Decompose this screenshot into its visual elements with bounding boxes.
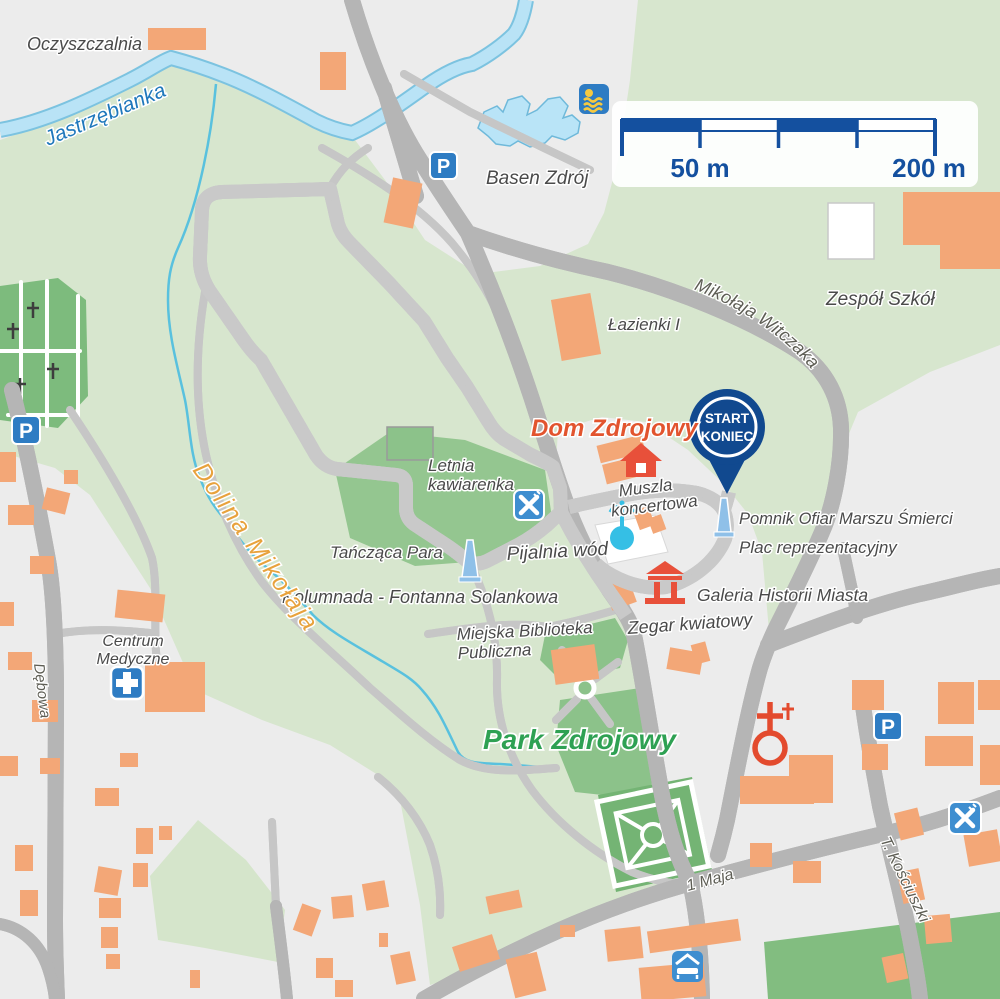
building [903,192,1000,245]
building [862,744,888,770]
building [925,736,973,766]
svg-text:P: P [881,716,895,739]
building-white [828,203,874,259]
building [852,680,884,710]
building [560,925,575,937]
building [750,843,772,867]
building [15,845,33,871]
building [159,826,172,840]
label-letnia-line1: Letnia [428,456,474,475]
label-centrum-line2: Medyczne [97,651,170,668]
building [8,505,34,525]
scale-bar: 50 m 200 m [612,101,978,187]
label-kolumnada: Kolumnada - Fontanna Solankowa [282,587,558,607]
building [95,788,119,806]
building [793,861,821,883]
building [148,28,206,50]
building [106,954,120,969]
parking-icon-east: P [874,712,902,740]
svg-text:P: P [19,420,33,443]
building [145,662,205,712]
label-park-zdrojowy: Park Zdrojowy [483,724,677,755]
building [978,680,1000,710]
building [115,590,166,623]
parking-icon-cemetery: P [12,416,40,444]
building [20,890,38,916]
building [551,644,599,685]
pin-start-label: START [705,411,750,426]
label-zespol-szkol: Zespół Szkół [825,289,936,310]
building [133,863,148,887]
building [604,926,643,962]
building [190,970,200,988]
building [0,602,14,626]
scale-label-50m: 50 m [670,153,729,183]
svg-text:P: P [437,156,450,178]
building [938,682,974,724]
label-galeria: Galeria Historii Miasta [697,585,868,605]
medical-cross-icon [111,667,143,699]
building [101,927,118,948]
label-plac: Plac reprezentacyjny [739,538,898,557]
building [64,470,78,484]
building [980,745,1000,785]
lawn-fenced [387,427,433,460]
label-tanczaca-para: Tańcząca Para [330,543,443,562]
scale-label-200m: 200 m [892,153,966,183]
building [316,958,333,978]
label-centrum-line1: Centrum [102,633,163,650]
map-canvas[interactable]: P P P [0,0,1000,999]
hotel-icon [672,951,703,982]
building [99,898,121,918]
label-basen-zdroj: Basen Zdrój [486,168,589,189]
label-lazienki: Łazienki I [608,315,680,334]
building [320,52,346,90]
building [740,776,814,804]
building [335,980,353,997]
label-pomnik: Pomnik Ofiar Marszu Śmierci [739,509,954,528]
building [379,933,388,947]
building [40,758,60,774]
building [136,828,153,854]
building [362,880,389,911]
building [331,895,354,919]
parking-icon-basen: P [430,152,457,179]
label-dom-zdrojowy: Dom Zdrojowy [531,415,699,442]
building [0,452,16,482]
building [0,756,18,776]
label-biblioteka-line2: Publiczna [457,640,532,663]
building [30,556,54,574]
label-oczyszczalnia: Oczyszczalnia [27,34,142,54]
building [8,652,32,670]
building [940,245,1000,269]
building [94,866,122,896]
swimming-pool-icon [579,84,609,114]
building [120,753,138,767]
pin-end-label: KONIEC [701,429,754,444]
restaurant-icon-park [514,490,544,520]
label-letnia-line2: kawiarenka [428,475,514,494]
tourist-route-map: P P P [0,0,1000,999]
restaurant-icon-east [949,802,981,834]
